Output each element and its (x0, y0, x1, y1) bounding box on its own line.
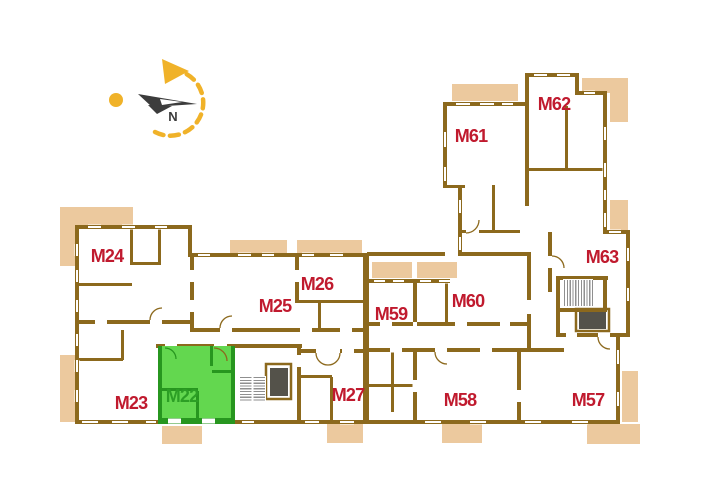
balcony (417, 262, 457, 278)
staircase-icon (239, 376, 266, 403)
window-frame (82, 420, 98, 421)
window-frame (78, 390, 79, 402)
window-frame (456, 102, 470, 103)
stair-tread (240, 383, 252, 384)
door-gap (150, 319, 162, 324)
wall (603, 91, 607, 234)
window-frame (330, 256, 343, 257)
window-frame (75, 244, 76, 256)
wall (445, 283, 448, 322)
unit-label-m25[interactable]: M25 (259, 296, 292, 316)
door-gap (189, 270, 194, 282)
wall (525, 73, 529, 106)
window-frame (75, 334, 76, 346)
stair-tread (254, 399, 266, 400)
window-frame (302, 253, 314, 254)
window-frame (238, 253, 251, 254)
window-frame (198, 256, 210, 257)
wall (603, 276, 607, 312)
balcony (610, 200, 628, 232)
stair-tread (581, 280, 582, 306)
window-frame (557, 73, 570, 74)
window-frame (82, 423, 98, 424)
stair-tread (254, 383, 266, 384)
balcony (230, 240, 287, 253)
window-frame (75, 300, 76, 312)
window-frame (146, 420, 156, 421)
balcony (297, 240, 362, 253)
window-frame (606, 127, 607, 140)
green-wall (158, 346, 162, 420)
wall (556, 276, 560, 337)
wall (525, 106, 529, 206)
wall (77, 358, 123, 361)
window-frame (446, 167, 447, 181)
balcony (610, 93, 628, 122)
window-frame (534, 76, 547, 77)
wall (318, 300, 321, 331)
window-frame (122, 228, 135, 229)
stair-tread (254, 391, 266, 392)
window-frame (112, 420, 128, 421)
window-frame (502, 102, 513, 103)
door-gap (480, 347, 492, 352)
wall (616, 333, 620, 424)
green-wall (231, 346, 235, 420)
compass-dot-icon (109, 93, 123, 107)
stair-tread (254, 380, 266, 381)
window-frame (557, 76, 570, 77)
wall (413, 281, 417, 322)
wall (188, 225, 192, 257)
balcony (60, 355, 75, 422)
window-frame (502, 105, 513, 106)
stair-tread (567, 280, 568, 306)
window-frame (439, 282, 450, 283)
unit-label-m60[interactable]: M60 (452, 291, 485, 311)
window-frame (629, 248, 630, 261)
window-frame (584, 94, 595, 95)
window-frame (75, 270, 76, 282)
stair-tread (240, 380, 252, 381)
wall (301, 375, 332, 378)
window (168, 419, 181, 424)
door-gap (500, 321, 510, 326)
window-frame (616, 392, 617, 406)
window-frame (78, 334, 79, 346)
window-frame (446, 132, 447, 147)
building-footprint (577, 93, 603, 234)
window-frame (606, 190, 607, 200)
window-frame (112, 423, 128, 424)
wall (626, 230, 630, 337)
unit-m22-highlight[interactable] (158, 346, 235, 424)
window-frame (75, 360, 76, 372)
unit-label-m24[interactable]: M24 (91, 246, 124, 266)
window-frame (146, 423, 156, 424)
green-wall (210, 346, 213, 366)
window-frame (480, 102, 494, 103)
window-frame (458, 237, 459, 250)
balcony (452, 84, 518, 101)
balcony (587, 424, 640, 444)
window-frame (443, 167, 444, 181)
floorplan-svg: M22M23M24M25M26M27M57M58M59M60M61M62M63N (0, 0, 707, 500)
stair-tread (254, 377, 266, 378)
window-frame (609, 230, 621, 231)
elevator-icon (579, 312, 606, 329)
balcony (622, 371, 638, 422)
north-label: N (168, 109, 177, 124)
door-gap (220, 327, 232, 332)
window-frame (443, 132, 444, 147)
window-frame (616, 350, 617, 364)
window-frame (155, 225, 167, 226)
stair-tread (572, 280, 573, 306)
wall (158, 229, 161, 265)
wall (367, 384, 413, 387)
door-gap (340, 327, 352, 332)
wall (517, 348, 521, 420)
window-frame (78, 244, 79, 256)
wall (121, 330, 124, 360)
stair-tread (254, 388, 266, 389)
stair-tread (575, 280, 576, 306)
window-frame (525, 423, 541, 424)
door-gap (526, 300, 531, 314)
door-gap (300, 327, 312, 332)
window-frame (88, 228, 101, 229)
wall (367, 252, 445, 256)
door-gap (390, 347, 402, 352)
door-gap (189, 300, 194, 312)
stair-tread (584, 280, 585, 306)
floorplan-page: M22M23M24M25M26M27M57M58M59M60M61M62M63N (0, 0, 707, 500)
window-frame (603, 190, 604, 200)
window-frame (122, 225, 135, 226)
stair-tread (240, 377, 252, 378)
window-frame (198, 253, 210, 254)
window-frame (572, 420, 588, 421)
window-frame (305, 420, 319, 421)
stair-tread (570, 280, 571, 306)
wall (130, 262, 161, 265)
stair-tread (240, 391, 252, 392)
window-frame (330, 253, 343, 254)
unit-label-m22[interactable]: M22 (166, 386, 199, 406)
door-gap (516, 390, 521, 402)
window-frame (439, 279, 450, 280)
window-frame (619, 392, 620, 406)
window-frame (420, 279, 431, 280)
window-frame (302, 256, 314, 257)
window-frame (242, 423, 254, 424)
wall (458, 252, 530, 256)
stair-tread (586, 280, 587, 306)
door-gap (95, 319, 107, 324)
window-frame (458, 200, 459, 213)
unit-label-m62[interactable]: M62 (538, 94, 571, 114)
wall (492, 185, 495, 231)
stair-tread (240, 394, 252, 395)
window-frame (78, 300, 79, 312)
stair-tread (240, 388, 252, 389)
window-frame (393, 282, 404, 283)
window-frame (525, 420, 541, 421)
unit-label-m63[interactable]: M63 (586, 247, 619, 267)
unit-label-m59[interactable]: M59 (375, 304, 408, 324)
window-frame (75, 390, 76, 402)
window-frame (88, 225, 101, 226)
window-frame (78, 270, 79, 282)
stair-tread (254, 385, 266, 386)
unit-label-m26[interactable]: M26 (301, 274, 334, 294)
door-gap (435, 347, 447, 352)
window-frame (374, 282, 385, 283)
window-frame (420, 282, 431, 283)
window-frame (470, 420, 486, 421)
window-frame (425, 423, 441, 424)
elevator-icon (270, 368, 288, 396)
wall (443, 185, 465, 188)
wall (417, 322, 527, 326)
wall (391, 352, 394, 412)
door-gap (316, 348, 340, 353)
window-frame (603, 163, 604, 177)
wall (565, 106, 568, 168)
wall (295, 300, 367, 303)
window-frame (534, 73, 547, 74)
window-frame (572, 423, 588, 424)
door-gap (598, 332, 610, 337)
window-frame (456, 105, 470, 106)
door-gap (294, 270, 299, 282)
window-frame (393, 279, 404, 280)
unit-label-m61[interactable]: M61 (455, 126, 488, 146)
window-frame (603, 213, 604, 227)
compass: N (109, 59, 203, 136)
wall (529, 168, 603, 171)
green-wall (212, 370, 233, 373)
window-frame (603, 127, 604, 140)
window-frame (480, 105, 494, 106)
balcony (162, 426, 202, 444)
wall (520, 348, 564, 352)
wall (130, 229, 133, 265)
stair-tread (578, 280, 579, 306)
door-gap (342, 348, 354, 353)
window-frame (262, 256, 274, 257)
window-frame (78, 360, 79, 372)
balcony (327, 424, 363, 443)
stair-tread (240, 397, 252, 398)
stair-tread (240, 399, 252, 400)
window-frame (242, 420, 254, 421)
window-frame (461, 237, 462, 250)
window-frame (340, 423, 354, 424)
door-gap (296, 355, 301, 367)
wall (190, 253, 194, 332)
door-gap (455, 321, 467, 326)
window-frame (584, 91, 595, 92)
stair-tread (254, 394, 266, 395)
unit-label-m58[interactable]: M58 (444, 390, 477, 410)
stair-tread (592, 280, 593, 306)
window-frame (305, 423, 319, 424)
window-frame (626, 248, 627, 261)
stair-tread (589, 280, 590, 306)
window-frame (425, 420, 441, 421)
stair-tread (240, 385, 252, 386)
window-frame (609, 233, 621, 234)
window-frame (606, 163, 607, 177)
unit-label-m23[interactable]: M23 (115, 393, 148, 413)
window-frame (374, 279, 385, 280)
window-frame (619, 350, 620, 364)
balcony (372, 262, 412, 278)
unit-label-m57[interactable]: M57 (572, 390, 605, 410)
window-frame (629, 288, 630, 301)
window-frame (155, 228, 167, 229)
window-frame (238, 256, 251, 257)
stair-tread (254, 397, 266, 398)
door-gap (412, 380, 417, 392)
stair-tread (564, 280, 565, 306)
window-frame (606, 213, 607, 227)
compass-arrowhead-icon (162, 59, 189, 84)
window-frame (626, 288, 627, 301)
window-frame (262, 253, 274, 254)
window (202, 419, 215, 424)
wall (77, 283, 132, 286)
wall (525, 73, 579, 77)
wall (75, 320, 192, 324)
unit-label-m27[interactable]: M27 (332, 385, 365, 405)
window-frame (470, 423, 486, 424)
window-frame (461, 200, 462, 213)
staircase-icon (563, 279, 593, 307)
balcony (442, 424, 482, 443)
door-gap (547, 256, 552, 268)
door-gap (566, 332, 577, 337)
window-frame (340, 420, 354, 421)
